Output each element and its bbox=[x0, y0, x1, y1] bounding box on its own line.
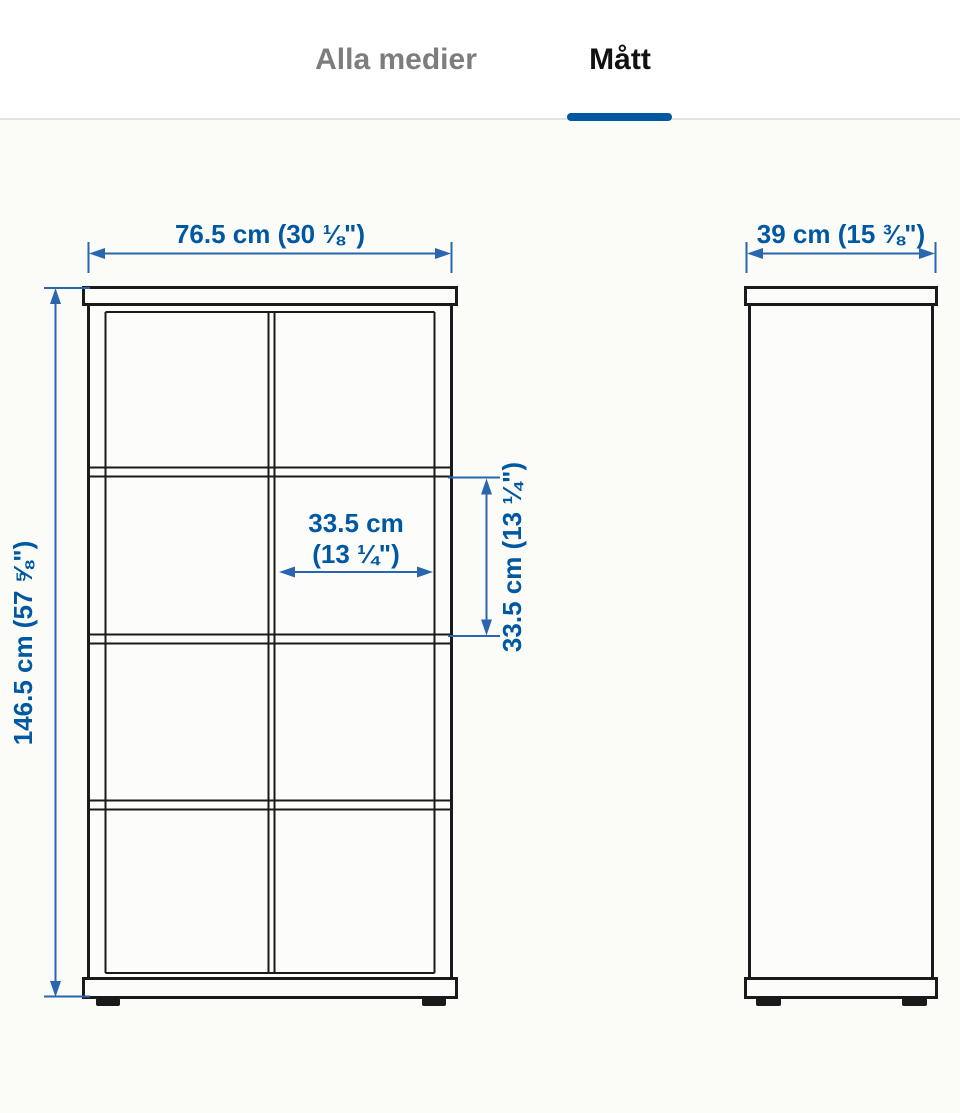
tab-alla-medier-label: Alla medier bbox=[315, 43, 477, 76]
tab-bar: Alla medier Mått bbox=[0, 0, 960, 120]
side-depth-label: 39 cm (15 ⅜") bbox=[757, 219, 925, 249]
tab-bar-divider bbox=[0, 118, 960, 120]
inner-width-label-line2: (13 ¼") bbox=[312, 539, 399, 569]
inner-height-dimension bbox=[448, 478, 500, 637]
front-width-label: 76.5 cm (30 ⅛") bbox=[175, 219, 365, 249]
side-bottom-panel bbox=[746, 979, 937, 998]
tab-matt-label: Mått bbox=[589, 43, 651, 76]
height-label: 146.5 cm (57 ⅝") bbox=[8, 541, 38, 746]
side-body bbox=[750, 305, 933, 979]
tab-matt[interactable]: Mått bbox=[589, 42, 651, 78]
inner-height-label: 33.5 cm (13 ¼") bbox=[497, 462, 527, 652]
inner-width-label-line1: 33.5 cm bbox=[308, 508, 403, 538]
front-view bbox=[84, 288, 457, 1007]
front-body bbox=[89, 305, 452, 979]
height-dimension bbox=[44, 288, 90, 997]
tab-alla-medier[interactable]: Alla medier bbox=[315, 42, 477, 78]
active-tab-underline bbox=[567, 113, 672, 121]
side-top-panel bbox=[746, 288, 937, 305]
front-bottom-panel bbox=[84, 979, 457, 998]
shelf-dimension-drawing: 76.5 cm (30 ⅛") 39 cm (15 ⅜") 146.5 cm (… bbox=[0, 120, 960, 1113]
front-feet bbox=[96, 998, 446, 1006]
front-top-panel bbox=[84, 288, 457, 305]
side-feet bbox=[756, 998, 927, 1006]
dimensions-diagram: 76.5 cm (30 ⅛") 39 cm (15 ⅜") 146.5 cm (… bbox=[0, 120, 960, 1113]
side-view bbox=[746, 288, 937, 1007]
